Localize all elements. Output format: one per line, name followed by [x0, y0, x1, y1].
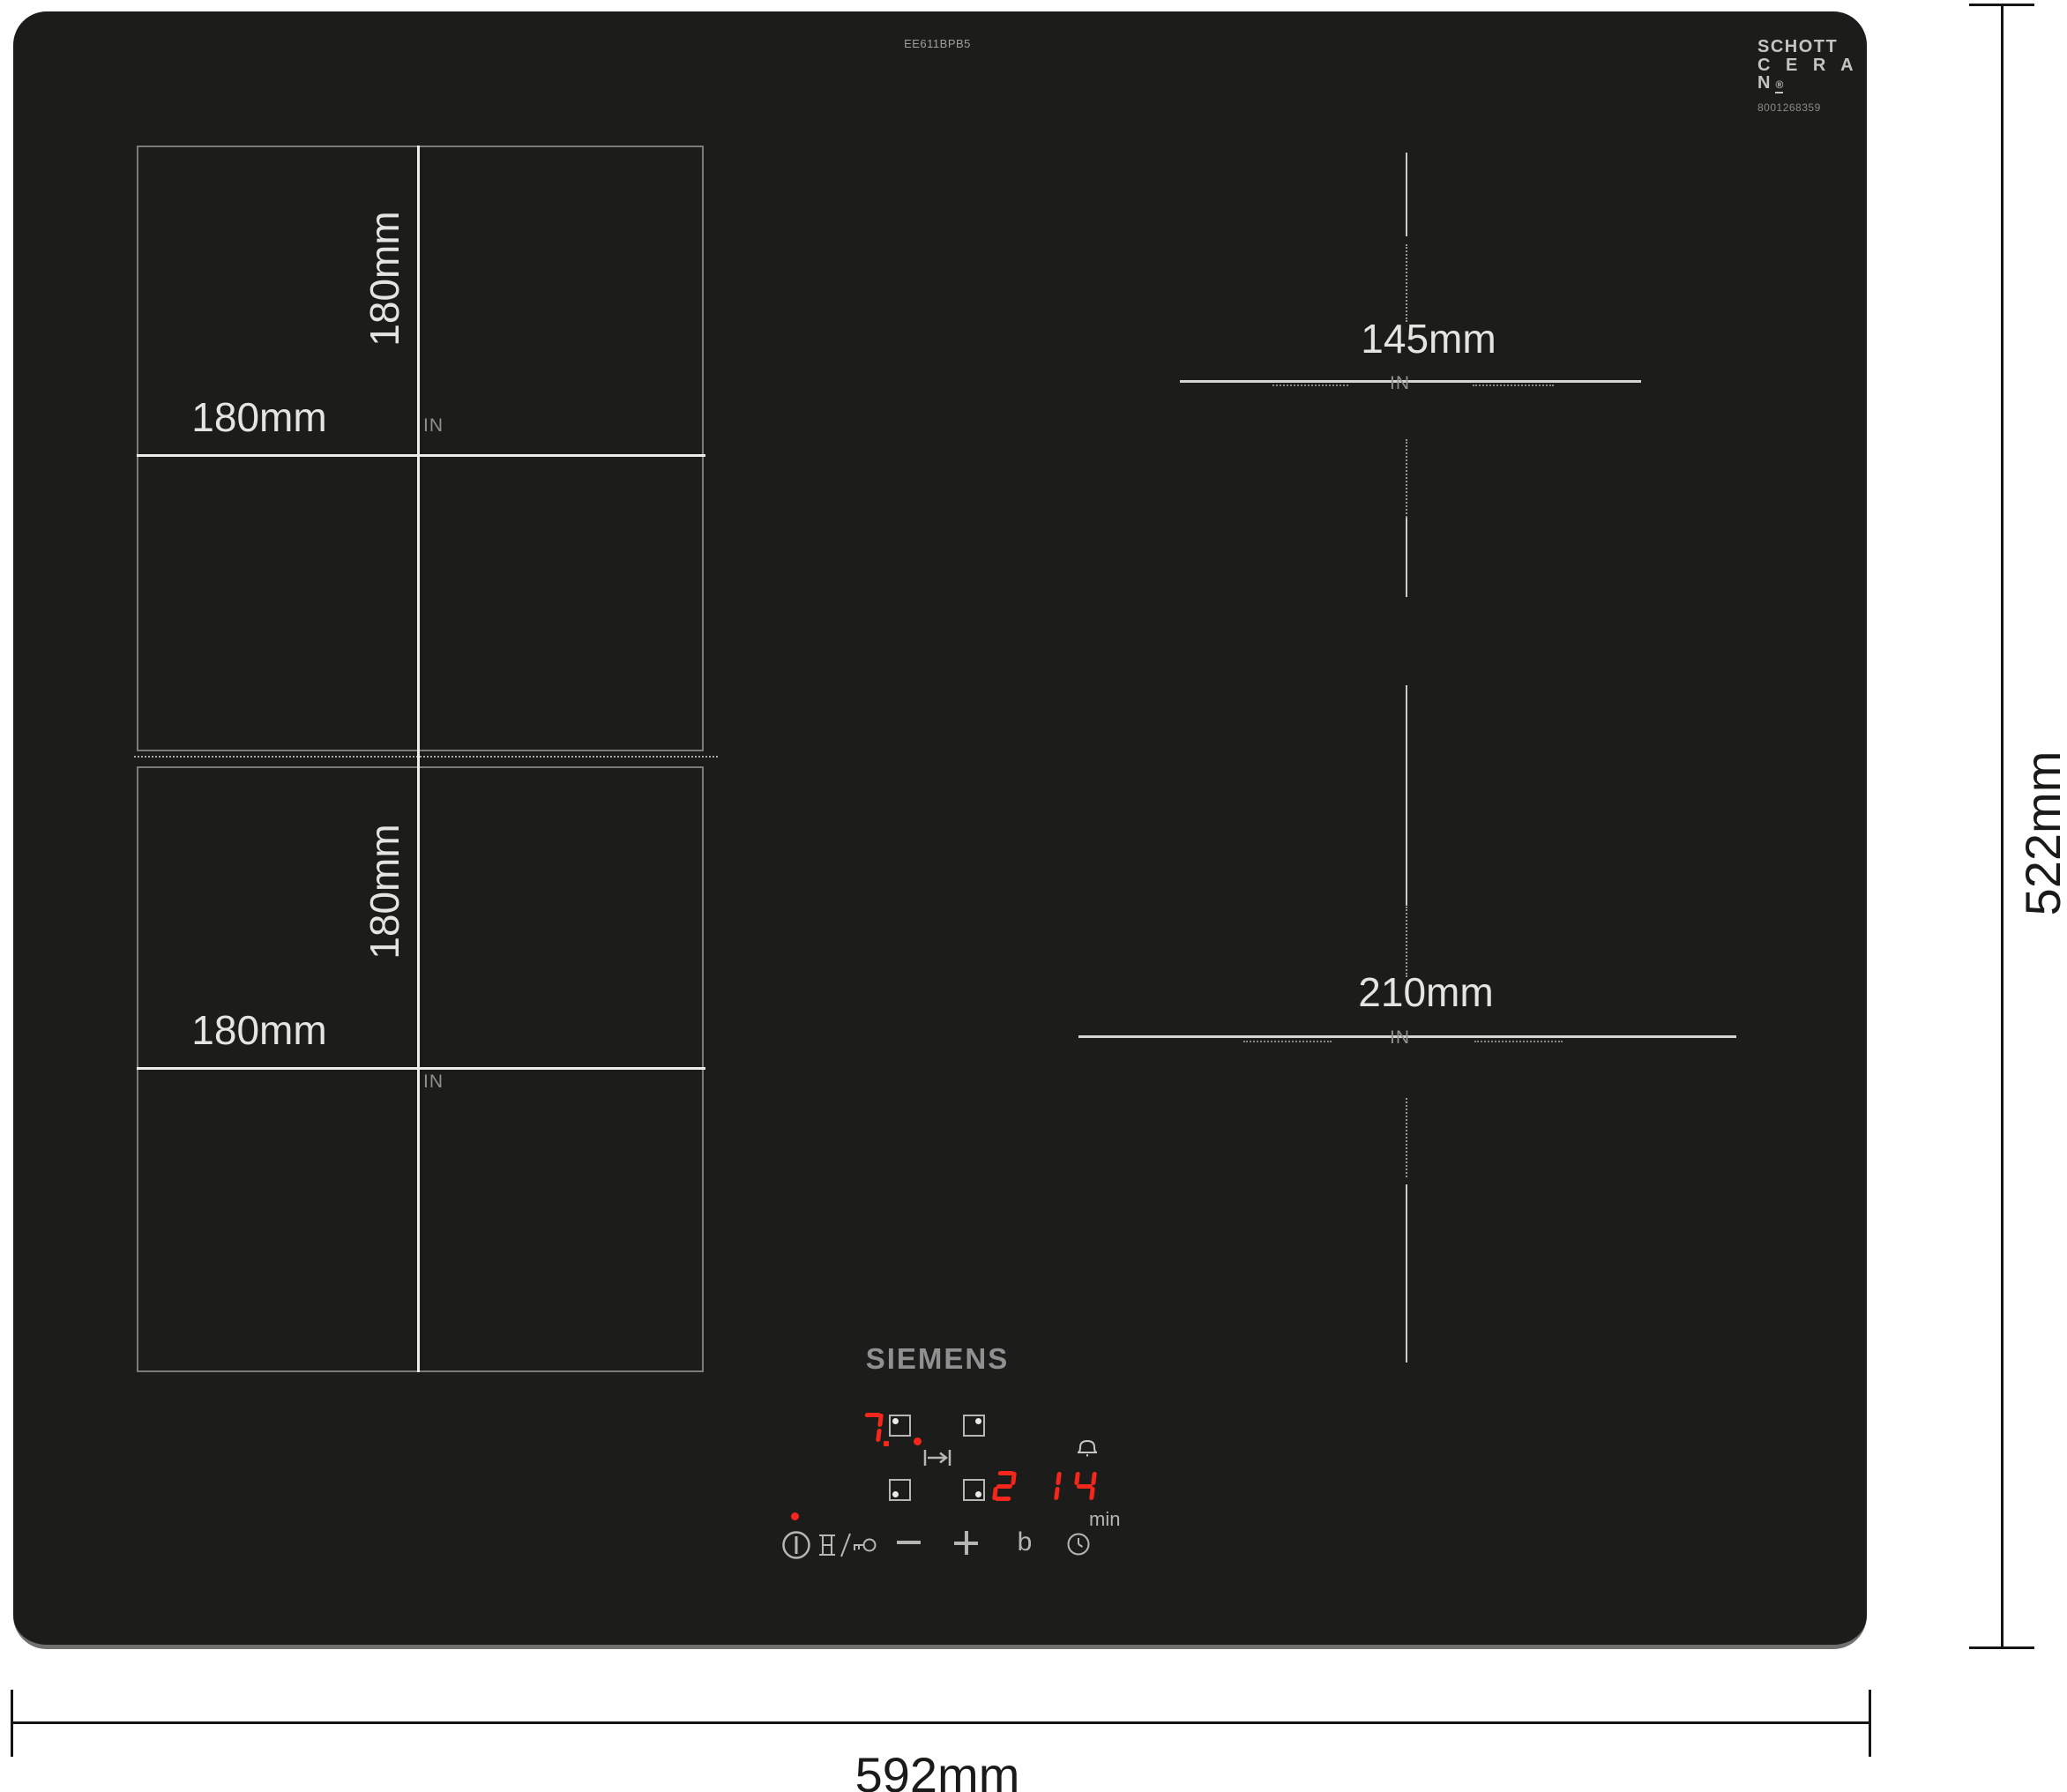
- zone-back-left-width-label: 180mm: [162, 397, 356, 437]
- right-zones-centerline-dotted-1: [1406, 244, 1407, 322]
- schott-logo-line1: SCHOTT: [1757, 38, 1867, 56]
- zone-back-right-inner-dotted-right: [1473, 385, 1554, 386]
- left-zones-vertical-centerline: [417, 146, 420, 1372]
- zone-front-right-inner-dotted-right: [1474, 1041, 1563, 1042]
- right-zones-centerline-solid-1: [1406, 153, 1407, 236]
- right-zones-centerline-solid-2: [1406, 518, 1407, 597]
- zone-front-right-diameter-label: 210mm: [1329, 972, 1523, 1012]
- dimension-diagram: EE611BPB5 SCHOTT C E R A N® 8001268359 1…: [0, 0, 2067, 1792]
- flex-bridge-icon: [923, 1448, 951, 1467]
- power-button[interactable]: [781, 1530, 811, 1560]
- zone-front-left-induction-mark: IN: [423, 1072, 444, 1091]
- minus-button[interactable]: [897, 1541, 921, 1544]
- right-zones-centerline-solid-3: [1406, 685, 1407, 906]
- zone-back-left-height-label: 180mm: [364, 182, 405, 376]
- zone-select-key-front-right[interactable]: [963, 1479, 985, 1501]
- model-number: EE611BPB5: [832, 37, 1043, 50]
- width-dimension-line: [11, 1721, 1871, 1724]
- heat-level-display: [861, 1413, 882, 1443]
- zone-position-dot: [975, 1491, 981, 1497]
- booster-button[interactable]: b: [1014, 1529, 1035, 1556]
- flex-zone-separator-dotted-line: [134, 756, 718, 758]
- zone-back-left-outline: [137, 146, 704, 751]
- zone-active-indicator-dot: [914, 1437, 922, 1445]
- zone-select-key-front-left[interactable]: [889, 1479, 911, 1501]
- right-zones-centerline-dotted-2: [1406, 439, 1407, 518]
- siemens-logo: SIEMENS: [832, 1342, 1043, 1376]
- depth-dimension-tick-top: [1969, 4, 2034, 6]
- width-dimension-label: 592mm: [832, 1751, 1043, 1792]
- zone-front-right-inner-dotted-left: [1243, 1041, 1332, 1042]
- depth-dimension-tick-bottom: [1969, 1646, 2034, 1649]
- right-zones-centerline-solid-4: [1406, 1184, 1407, 1363]
- zone-back-right-induction-mark: IN: [1390, 374, 1410, 392]
- width-dimension-tick-left: [11, 1690, 13, 1757]
- width-dimension-tick-right: [1869, 1690, 1871, 1757]
- zone-select-key-back-left[interactable]: [889, 1415, 911, 1437]
- zone-select-key-back-right[interactable]: [963, 1415, 985, 1437]
- right-zones-centerline-dotted-3: [1406, 907, 1407, 977]
- hob-surface: EE611BPB5 SCHOTT C E R A N® 8001268359 1…: [13, 11, 1867, 1649]
- zone-back-right-diameter-line: [1180, 380, 1641, 383]
- zone-back-right-diameter-label: 145mm: [1332, 318, 1526, 359]
- heat-level-decimal-point: [884, 1441, 889, 1446]
- wipe-protection-childlock-key[interactable]: [818, 1532, 880, 1558]
- timer-minutes-display: [1039, 1471, 1095, 1501]
- zone-front-left-horizontal-centerline: [137, 1067, 705, 1070]
- schott-serial-code: 8001268359: [1757, 102, 1867, 113]
- zone-back-left-induction-mark: IN: [423, 416, 444, 435]
- plus-button[interactable]: [954, 1531, 978, 1555]
- registered-mark-icon: ®: [1775, 78, 1783, 93]
- bell-icon: [1075, 1437, 1100, 1458]
- schott-ceran-logo: SCHOTT C E R A N® 8001268359: [1757, 38, 1867, 113]
- zone-back-left-horizontal-centerline: [137, 454, 705, 457]
- zone-front-left-width-label: 180mm: [162, 1010, 356, 1050]
- right-zones-centerline-dotted-4: [1406, 1098, 1407, 1177]
- zone-back-right-inner-dotted-left: [1272, 385, 1348, 386]
- zone-position-dot: [892, 1418, 899, 1424]
- power-indicator-dot: [791, 1512, 799, 1520]
- depth-dimension-line: [2001, 4, 2004, 1649]
- zone-front-left-height-label: 180mm: [364, 795, 405, 989]
- zone-position-dot: [892, 1491, 899, 1497]
- timer-unit-label: min: [1089, 1510, 1120, 1529]
- depth-dimension-label: 522mm: [2018, 736, 2067, 930]
- schott-logo-line2: C E R A N®: [1757, 56, 1867, 92]
- timer-zone-display: [994, 1471, 1015, 1501]
- zone-front-right-induction-mark: IN: [1390, 1028, 1410, 1047]
- timer-clock-button[interactable]: [1066, 1532, 1091, 1557]
- zone-position-dot: [975, 1418, 981, 1424]
